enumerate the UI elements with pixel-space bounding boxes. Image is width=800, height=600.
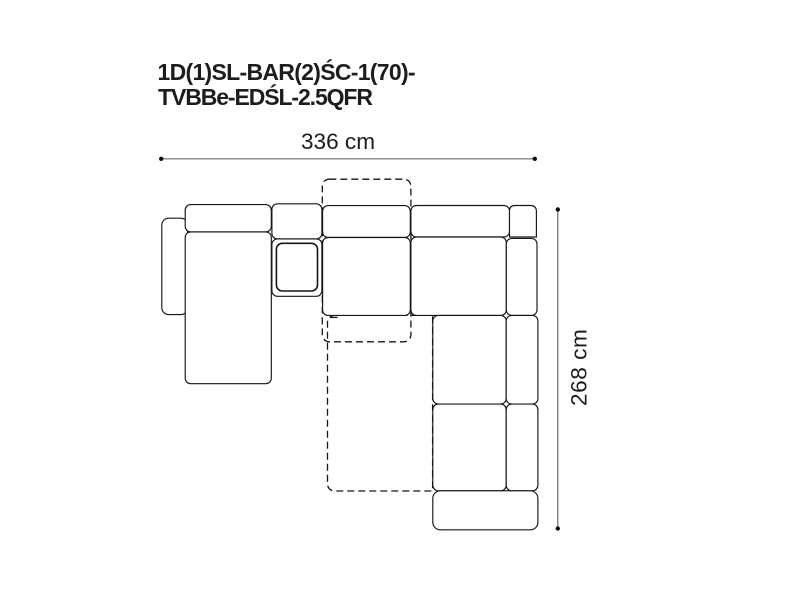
svg-text:1D(1)SL-BAR(2)ŚC-1(70)-: 1D(1)SL-BAR(2)ŚC-1(70)- xyxy=(158,58,415,85)
svg-text:336 cm: 336 cm xyxy=(301,129,375,154)
svg-text:268 cm: 268 cm xyxy=(567,329,592,406)
svg-text:TVBBe-EDŚL-2.5QFR: TVBBe-EDŚL-2.5QFR xyxy=(158,83,373,110)
